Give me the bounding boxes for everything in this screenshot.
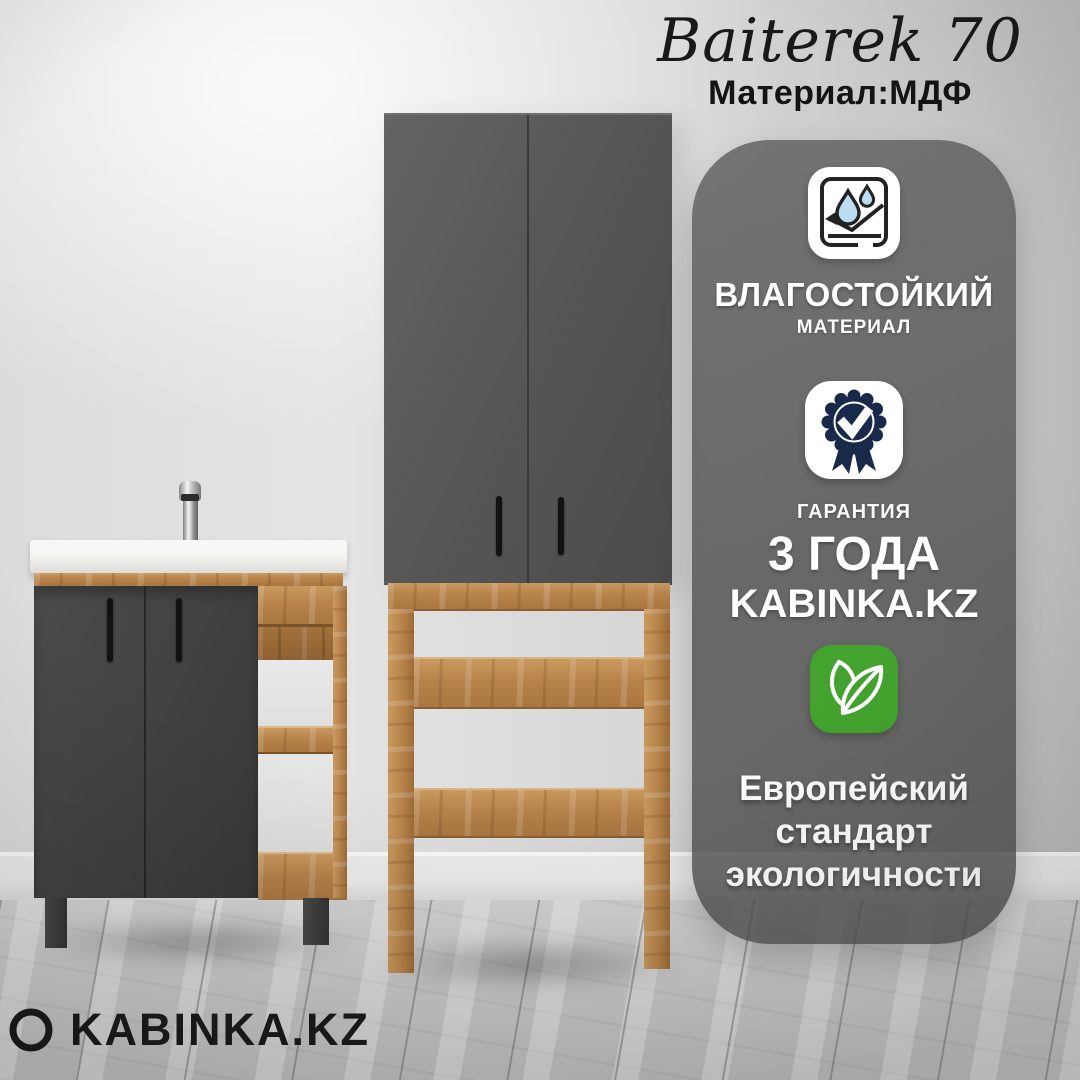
tall-cabinet-door-gap — [527, 115, 529, 583]
waterproof-subtitle: МАТЕРИАЛ — [797, 317, 912, 339]
vanity-door-gap — [144, 586, 146, 898]
vanity-wood-trim — [34, 573, 343, 586]
vanity-doors — [34, 586, 258, 898]
vanity-open-shelves — [258, 586, 347, 898]
vanity-shelf-opening — [258, 660, 333, 726]
water-resistant-icon — [808, 167, 900, 259]
product-header: Baiterek 70 Материал:МДФ — [640, 8, 1040, 113]
waterproof-title: ВЛАГОСТОЙКИЙ — [714, 275, 993, 315]
brand-logo-text: KABINKA.KZ — [70, 1004, 370, 1056]
product-title: Baiterek 70 — [640, 8, 1040, 74]
tall-cabinet-crossbar-lower — [414, 788, 644, 838]
tall-cabinet-handle-left — [496, 496, 502, 556]
vanity-faucet-band — [181, 494, 199, 501]
vanity-handle-left — [107, 598, 113, 662]
features-panel: ВЛАГОСТОЙКИЙ МАТЕРИАЛ ГАРАНТИЯ 3 ГОДА KA… — [692, 140, 1016, 944]
warranty-years: 3 ГОДА — [768, 529, 940, 581]
vanity-leg — [45, 898, 67, 948]
vanity-handle-right — [176, 598, 182, 662]
warranty-badge-icon — [805, 381, 903, 479]
tall-cabinet-crossbar-upper — [414, 657, 644, 709]
tall-cabinet-leg-right — [644, 609, 670, 969]
vanity-leg — [303, 898, 329, 945]
warranty-label: ГАРАНТИЯ — [797, 501, 911, 523]
tall-cabinet-handle-right — [558, 497, 564, 555]
eco-standard-text: Европейский стандарт экологичности — [726, 767, 983, 896]
product-material: Материал:МДФ — [640, 74, 1040, 113]
brand-logo: KABINKA.KZ — [8, 1004, 370, 1056]
vanity-shelf-back-panel — [258, 624, 333, 660]
vanity-shelf-opening — [258, 750, 333, 852]
vanity-sink-top — [30, 540, 347, 575]
water-resistant-icon-svg — [808, 167, 900, 259]
eco-line: Европейский — [726, 767, 983, 810]
product-photo-scene: Baiterek 70 Материал:МДФ ВЛАГОСТОЙКИЙ МА… — [0, 0, 1080, 1080]
tall-cabinet-leg-left — [388, 609, 414, 973]
eco-leaves-icon-svg — [810, 645, 898, 733]
warranty-brand: KABINKA.KZ — [730, 581, 979, 627]
brand-logo-circle-icon — [8, 1007, 54, 1053]
eco-leaves-icon — [810, 645, 898, 733]
warranty-badge-icon-svg — [805, 381, 903, 479]
eco-line: стандарт — [726, 810, 983, 853]
tall-cabinet-apron — [388, 583, 670, 611]
eco-line: экологичности — [726, 853, 983, 896]
vanity-side-panel — [333, 586, 347, 898]
